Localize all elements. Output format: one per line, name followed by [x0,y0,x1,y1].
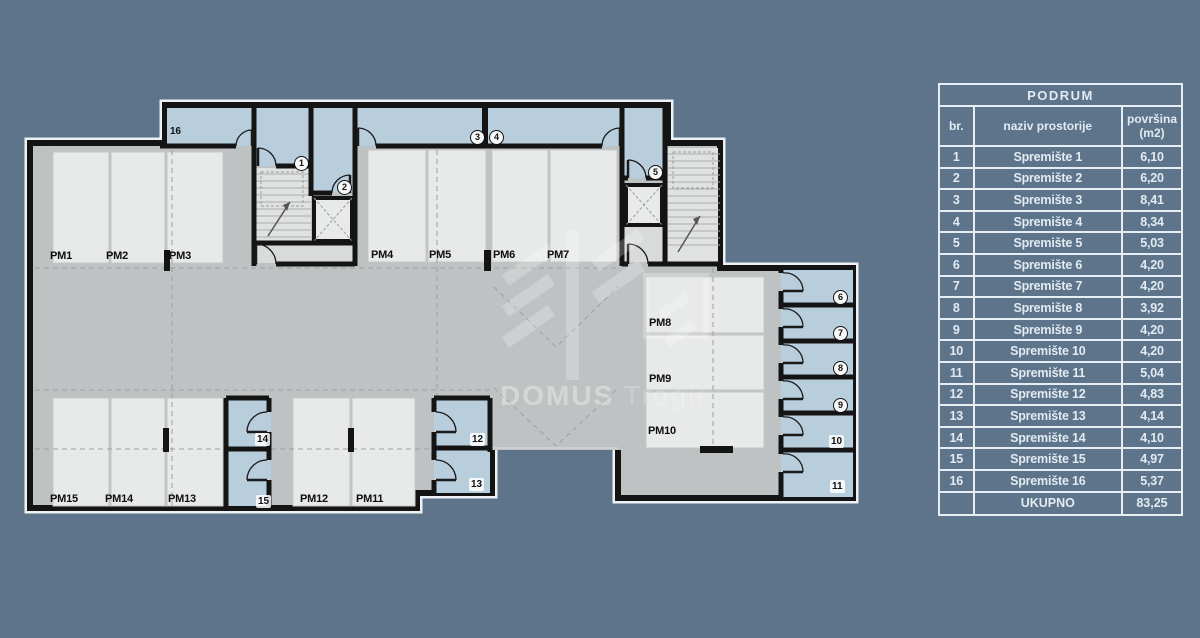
elevator-left [314,198,352,241]
table-total-row: UKUPNO 83,25 [939,492,1182,515]
parking-label: PM3 [169,250,191,262]
table-row: 6Spremište 64,20 [939,254,1182,276]
storage-room-number: 14 [255,433,270,446]
storage-room-number: 5 [648,165,663,180]
table-title: PODRUM [939,84,1182,106]
parking-label: PM5 [429,249,451,261]
table-row: 11Spremište 115,04 [939,362,1182,384]
parking-label: PM8 [649,317,671,329]
storage-room-number: 7 [833,326,848,341]
table-row: 4Spremište 48,34 [939,211,1182,233]
parking-label: PM14 [105,493,133,505]
watermark-brand: DOMUS [500,380,614,411]
parking-label: PM12 [300,493,328,505]
table-row: 8Spremište 83,92 [939,297,1182,319]
area-table: PODRUM br. naziv prostorije površina (m2… [938,83,1183,516]
table-row: 7Spremište 74,20 [939,276,1182,298]
parking-label: PM2 [106,250,128,262]
watermark-text: DOMUS Trogir [500,380,708,412]
table-row: 3Spremište 38,41 [939,189,1182,211]
storage-room-number: 11 [830,480,845,493]
storage-room-number: 12 [470,433,485,446]
parking-label: PM13 [168,493,196,505]
parking-label: PM1 [50,250,72,262]
table-row: 1Spremište 16,10 [939,146,1182,168]
table-row: 16Spremište 165,37 [939,470,1182,492]
parking-label: PM6 [493,249,515,261]
basement-floorplan-page: PM1 PM2 PM3 PM4 PM5 PM6 PM7 PM8 PM9 PM10… [0,0,1200,638]
table-row: 5Spremište 55,03 [939,232,1182,254]
table-row: 13Spremište 134,14 [939,405,1182,427]
total-label: UKUPNO [974,492,1122,515]
storage-room-number: 15 [256,495,271,508]
storage-room-number: 3 [470,130,485,145]
storage-room-number: 8 [833,361,848,376]
table-row: 10Spremište 104,20 [939,340,1182,362]
col-header-povrsina-unit: (m2) [1123,126,1181,140]
storage-room-number: 6 [833,290,848,305]
table-row: 2Spremište 26,20 [939,168,1182,190]
parking-label: PM7 [547,249,569,261]
parking-label: PM10 [648,425,676,437]
table-row: 15Spremište 154,97 [939,448,1182,470]
storage-room-number: 1 [294,156,309,171]
col-header-povrsina: površina (m2) [1122,106,1182,146]
col-header-povrsina-label: površina [1123,112,1181,126]
total-br-empty [939,492,974,515]
parking-label: PM11 [356,493,383,505]
table-row: 14Spremište 144,10 [939,427,1182,449]
storage-room-number: 4 [489,130,504,145]
col-header-naziv: naziv prostorije [974,106,1122,146]
parking-label: PM15 [50,493,78,505]
table-row: 9Spremište 94,20 [939,319,1182,341]
storage-room-number: 2 [337,180,352,195]
storage-room-number: 13 [469,478,484,491]
storage-room-number: 16 [170,126,181,137]
col-header-br: br. [939,106,974,146]
table-row: 12Spremište 124,83 [939,384,1182,406]
total-value: 83,25 [1122,492,1182,515]
storage-room-number: 9 [833,398,848,413]
parking-label: PM4 [371,249,393,261]
storage-room-number: 10 [829,435,844,448]
watermark-location: Trogir [624,380,708,411]
elevator-right [626,185,662,225]
